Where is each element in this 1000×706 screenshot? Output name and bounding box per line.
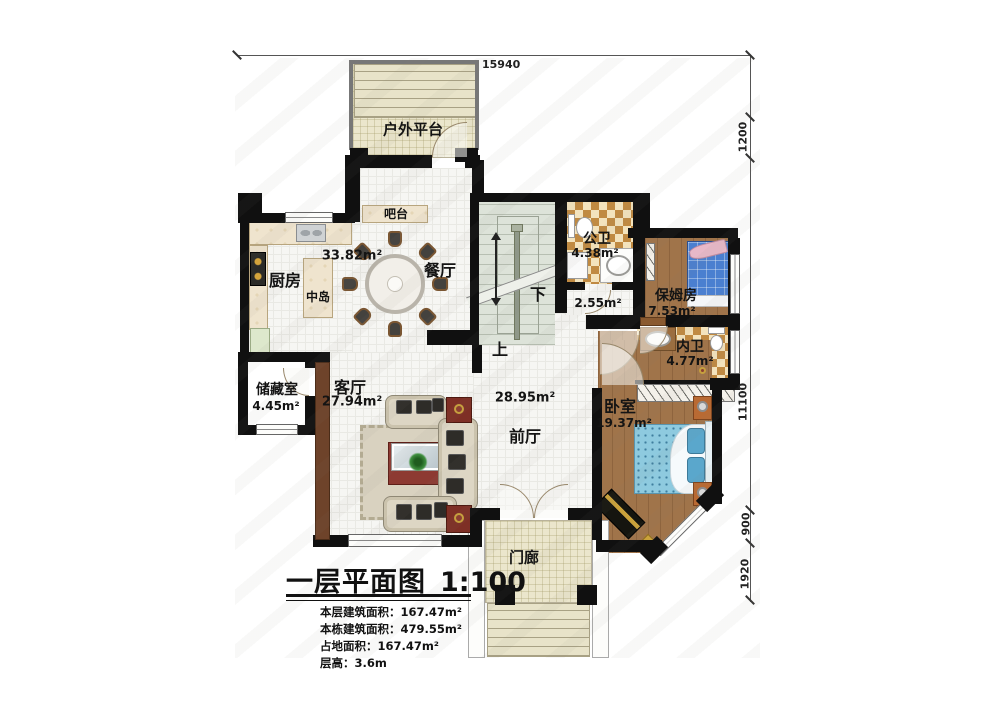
room-label-island: 中岛 xyxy=(306,291,330,303)
private-wc-window xyxy=(730,330,740,374)
wall-segment xyxy=(305,396,315,435)
room-label-public-wc: 公卫 xyxy=(583,232,611,246)
plant xyxy=(408,452,428,472)
platform-wall-right xyxy=(475,62,479,150)
wall-segment xyxy=(555,193,567,313)
stove xyxy=(250,252,266,286)
info-floor-area: 本层建筑面积：167.47m² xyxy=(320,604,462,620)
dim-top-width: 15940 xyxy=(482,58,520,71)
wall-segment xyxy=(470,508,500,520)
dining-chair xyxy=(388,321,402,337)
title-underline-thin xyxy=(286,600,471,601)
room-label-kitchen: 厨房 xyxy=(269,273,301,289)
area-label-public-wc: 4.38m² xyxy=(571,247,618,259)
dining-table-center xyxy=(387,276,403,292)
title-underline-thick xyxy=(286,594,471,597)
wall-segment xyxy=(238,425,258,435)
dining-chair xyxy=(388,231,402,247)
wall-segment xyxy=(586,315,640,329)
room-label-nanny: 保姆房 xyxy=(655,289,697,303)
porch-steps xyxy=(487,603,590,657)
dim-right-1200: 1200 xyxy=(737,122,750,153)
area-label-bedroom: 19.37m² xyxy=(596,417,652,429)
sofa-cushion xyxy=(448,454,466,470)
platform-wall-top xyxy=(349,60,479,64)
dim-right-900: 900 xyxy=(740,513,753,536)
wall-segment xyxy=(238,352,248,435)
kitchen-cabinet xyxy=(250,328,270,354)
area-label-living: 27.94m² xyxy=(322,396,382,409)
stair-arrow-down xyxy=(491,298,501,306)
platform-wall-left xyxy=(349,62,353,150)
area-label-hallway: 2.55m² xyxy=(574,297,621,309)
stairs-up-label: 上 xyxy=(492,342,508,358)
nanny-door-leaf xyxy=(640,317,666,326)
wall-segment xyxy=(567,282,585,290)
wall-segment xyxy=(633,238,645,317)
stairs-down-label: 下 xyxy=(530,287,546,303)
room-label-front-hall: 前厅 xyxy=(509,429,541,445)
tv-feature-wall xyxy=(315,362,330,540)
kitchen-sink xyxy=(296,224,326,242)
dining-chair xyxy=(342,277,358,291)
area-label-storage: 4.45m² xyxy=(252,400,299,412)
sofa-cushion xyxy=(416,504,432,520)
dim-right-11100: 11100 xyxy=(737,383,750,421)
dim-right-1920: 1920 xyxy=(739,559,752,590)
sofa-cushion xyxy=(446,430,464,446)
room-label-bar: 吧台 xyxy=(384,208,408,220)
bedroom-pillow xyxy=(687,428,705,454)
room-label-private-wc: 内卫 xyxy=(676,340,704,354)
kitchen-window xyxy=(285,212,333,223)
living-window xyxy=(348,534,442,547)
sofa-cushion xyxy=(432,398,444,412)
sofa-cushion xyxy=(416,400,432,414)
info-building-area: 本栋建筑面积：479.55m² xyxy=(320,621,462,637)
kitchen-island xyxy=(303,258,333,318)
area-label-private-wc: 4.77m² xyxy=(666,355,713,367)
outdoor-platform-steps xyxy=(354,64,476,118)
room-label-bedroom: 卧室 xyxy=(604,399,636,415)
wall-segment xyxy=(472,345,482,373)
wall-segment xyxy=(470,193,479,345)
dim-line-top xyxy=(237,55,750,56)
sofa-cushion xyxy=(446,478,464,494)
area-label-nanny: 7.53m² xyxy=(648,305,695,317)
nightstand-lamp xyxy=(697,401,708,412)
side-table-lamp xyxy=(454,513,464,523)
info-footprint-area: 占地面积：167.47m² xyxy=(320,638,439,654)
sofa-cushion xyxy=(396,400,412,414)
pubwc-toilet-tank xyxy=(568,214,575,238)
wall-segment xyxy=(568,508,600,520)
nanny-closet-rail xyxy=(646,243,655,281)
wall-segment xyxy=(350,148,368,162)
floor-drain xyxy=(699,367,706,374)
wall-segment xyxy=(240,222,249,354)
stair-arrow-up xyxy=(491,232,501,240)
area-label-front-hall: 28.95m² xyxy=(495,392,555,405)
wall-segment xyxy=(305,352,315,368)
stair-railing-cap xyxy=(511,224,523,232)
privwc-toilet-tank xyxy=(708,327,725,334)
stair-run-arrow-line xyxy=(495,238,497,300)
wall-segment xyxy=(612,282,638,290)
wall-segment xyxy=(427,330,478,345)
room-label-dining: 餐厅 xyxy=(424,263,456,279)
area-label-kitchen-dining: 33.82m² xyxy=(322,250,382,263)
side-table-lamp xyxy=(454,404,464,414)
bedroom-pillow xyxy=(687,457,705,483)
storage-window xyxy=(256,424,298,435)
floor-plan-canvas: 户外平台 吧台 33.82m² 餐厅 厨房 中岛 公卫 4.38m² 下 2.5… xyxy=(0,0,1000,706)
room-label-storage: 储藏室 xyxy=(256,383,298,397)
room-label-outdoor-platform: 户外平台 xyxy=(383,123,443,138)
sofa-cushion xyxy=(396,504,412,520)
wall-segment xyxy=(238,352,315,362)
wall-segment xyxy=(628,228,738,238)
nanny-window xyxy=(730,254,740,314)
wall-segment xyxy=(470,193,567,202)
info-storey-height: 层高：3.6m xyxy=(320,655,387,671)
wall-segment xyxy=(577,585,597,605)
privwc-toilet-bowl xyxy=(710,335,723,351)
